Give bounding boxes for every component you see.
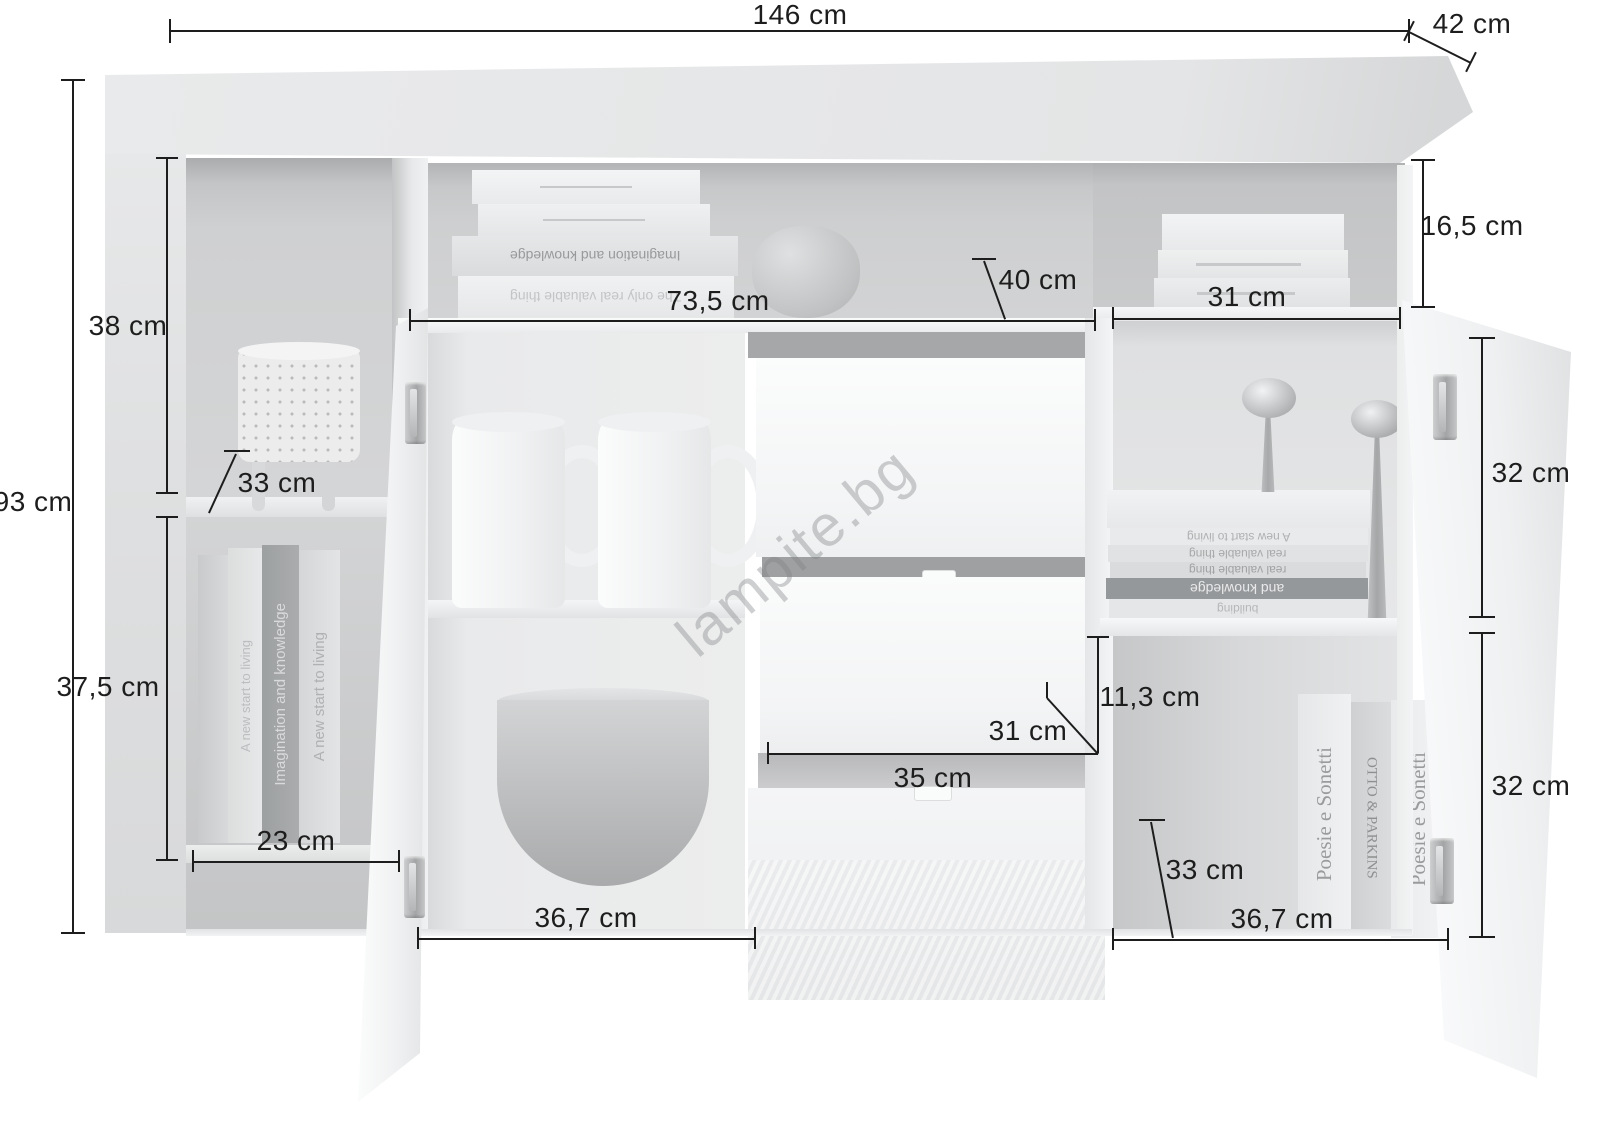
dim-label-left-shelf: 33 cm xyxy=(238,467,317,499)
dim-line-right-door xyxy=(1113,939,1448,941)
book-spine-label: A new start to living xyxy=(311,632,328,761)
dim-line-left-width xyxy=(193,861,399,863)
book-spine-label: OTTO & PARKINS xyxy=(1363,757,1380,879)
book-spine-label: Imagination and knowledge xyxy=(272,603,289,786)
book-spine xyxy=(198,555,228,843)
stacked-book: A new start to living xyxy=(1110,528,1368,545)
dim-tick xyxy=(1112,307,1114,329)
book-spine-label: building xyxy=(1217,602,1258,616)
stacked-book xyxy=(472,170,700,204)
dim-label-left-lower: 37,5 cm xyxy=(56,671,159,703)
book-upright: OTTO & PARKINS xyxy=(1351,702,1391,934)
dim-label-right-shelf: 33 cm xyxy=(1166,854,1245,886)
left-door-hinge xyxy=(404,856,425,918)
right-shelf-board xyxy=(1100,618,1410,636)
dim-line-left-lower xyxy=(166,517,168,860)
left-door-hinge xyxy=(405,382,426,444)
book-spine-label: The only real valuable thing xyxy=(510,289,681,305)
dim-line-right-lower xyxy=(1481,633,1483,937)
book-spine-label: A new start to living xyxy=(1187,530,1290,544)
dim-label-total-width: 146 cm xyxy=(753,0,848,31)
dim-label-shelf-depth: 40 cm xyxy=(999,264,1078,296)
dim-tick xyxy=(1469,616,1495,618)
dim-label-right-lower: 32 cm xyxy=(1492,770,1571,802)
candlestick-top xyxy=(1242,378,1296,418)
dim-line-right-niche-width xyxy=(1113,318,1400,320)
book-spine-label: A new start to living xyxy=(238,640,253,752)
dim-tick xyxy=(1112,928,1114,950)
book-spine-label: Imagination and knowledge xyxy=(510,248,680,264)
book-spine: A new start to living xyxy=(228,548,262,843)
dim-tick xyxy=(1411,159,1435,161)
stacked-book: real valuable thing xyxy=(1108,545,1368,562)
right-door-hinge xyxy=(1430,838,1454,904)
jug-rim xyxy=(452,412,565,432)
jug-rim xyxy=(598,412,711,432)
drawer-cavity-top xyxy=(748,332,1085,358)
dim-tick xyxy=(1469,632,1495,634)
dim-label-drawer-height: 11,3 cm xyxy=(1099,681,1200,713)
dim-tick xyxy=(61,79,85,81)
dim-line-left-door xyxy=(418,938,755,940)
dim-tick xyxy=(767,742,769,764)
dim-tick xyxy=(156,492,178,494)
dim-line-top-shelf-width xyxy=(410,320,1095,322)
white-jug xyxy=(452,418,565,608)
plant-pot-rim xyxy=(238,342,360,360)
dim-tick xyxy=(61,932,85,934)
dim-label-right-door: 36,7 cm xyxy=(1230,903,1333,935)
dim-tick xyxy=(1399,307,1401,329)
plant-pot-leg-right xyxy=(322,455,335,511)
dim-label-right-niche-width: 31 cm xyxy=(1208,281,1287,313)
dim-tick xyxy=(1469,936,1495,938)
plant-pot xyxy=(238,348,360,462)
stacked-book: real valuable thing xyxy=(1110,562,1366,578)
dim-tick xyxy=(1087,636,1109,638)
book-spine: A new start to living xyxy=(299,550,340,843)
book-spine: Imagination and knowledge xyxy=(262,545,299,843)
dim-label-total-depth: 42 cm xyxy=(1433,8,1512,40)
right-door-hinge xyxy=(1433,374,1457,440)
cabinet-right-wall xyxy=(1397,165,1413,935)
dim-tick xyxy=(1469,337,1495,339)
dim-label-drawer-front: 35 cm xyxy=(894,762,973,794)
dim-line-right-upper xyxy=(1481,338,1483,617)
stacked-book xyxy=(478,204,710,236)
dim-tick xyxy=(156,157,178,159)
dim-line-drawer-front xyxy=(768,753,1098,755)
dim-tick xyxy=(1094,309,1096,331)
dim-tick xyxy=(398,850,400,872)
dim-tick xyxy=(156,516,178,518)
dim-label-left-upper: 38 cm xyxy=(89,310,168,342)
product-dimension-diagram: A new start to living Imagination and kn… xyxy=(0,0,1600,1134)
book-spine-label: real valuable thing xyxy=(1189,563,1286,577)
dim-tick xyxy=(169,19,171,43)
dim-tick xyxy=(1046,682,1048,698)
dim-tick xyxy=(409,309,411,331)
book-upright: Poesie e Sonetti xyxy=(1298,694,1351,934)
cabinet-top-slab xyxy=(105,56,1475,164)
book-spine-label: real valuable thing xyxy=(1189,547,1286,561)
dim-label-left-door: 36,7 cm xyxy=(534,902,637,934)
cabinet-left-wall xyxy=(105,154,186,933)
white-jug xyxy=(598,418,711,608)
dim-tick xyxy=(1139,819,1165,821)
dim-tick xyxy=(754,927,756,949)
dim-tick xyxy=(1411,306,1435,308)
dim-label-drawer-inner-width: 31 cm xyxy=(989,715,1068,747)
dim-label-right-niche-height: 16,5 cm xyxy=(1420,210,1523,242)
book-spine-label: and knowledge xyxy=(1190,581,1284,597)
dim-tick xyxy=(1447,928,1449,950)
dim-tick xyxy=(417,927,419,949)
stacked-book: Imagination and knowledge xyxy=(452,236,738,276)
stacked-book: building xyxy=(1109,599,1367,618)
right-door-open xyxy=(1402,300,1571,1078)
book-spine-label: Poesie e Sonetti xyxy=(1312,747,1337,881)
stacked-book xyxy=(1107,490,1370,528)
stacked-book: and knowledge xyxy=(1106,578,1368,599)
stacked-book xyxy=(1162,214,1344,250)
dim-label-total-height: 93 cm xyxy=(0,486,72,518)
dim-label-right-upper: 32 cm xyxy=(1492,457,1571,489)
dim-tick xyxy=(192,850,194,872)
dim-label-left-width: 23 cm xyxy=(257,825,336,857)
candlestick-top xyxy=(1351,400,1403,438)
dim-label-top-shelf-width: 73,5 cm xyxy=(666,285,769,317)
stacked-book xyxy=(1158,250,1348,278)
dim-tick xyxy=(156,859,178,861)
dim-tick xyxy=(224,450,250,452)
left-niche-shelf xyxy=(186,497,398,517)
